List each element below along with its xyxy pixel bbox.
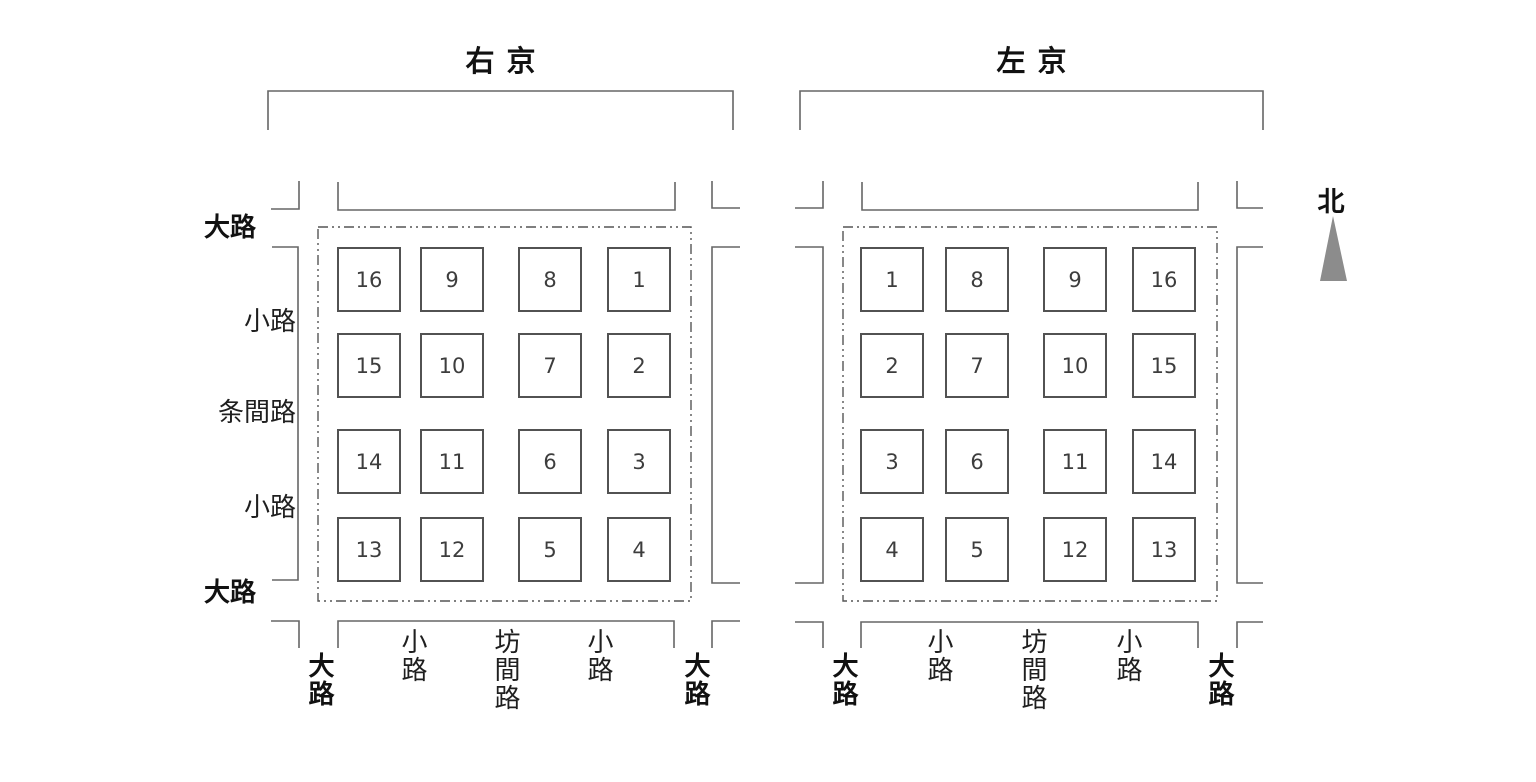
road-label-oji-south: 大路 <box>156 578 256 608</box>
block-cell: 16 <box>337 247 401 312</box>
block-cell: 4 <box>860 517 924 582</box>
road-label-jokanji: 条間路 <box>166 398 296 428</box>
road-label-koji-ukyo-1: 小路 <box>398 628 426 684</box>
block-cell: 10 <box>420 333 484 398</box>
road-label-oji-east-sakyo: 大路 <box>1205 652 1233 708</box>
road-label-oji-west-sakyo: 大路 <box>829 652 857 708</box>
road-label-koji-sakyo-2: 小路 <box>1113 628 1141 684</box>
block-cell: 15 <box>1132 333 1196 398</box>
block-cell: 1 <box>607 247 671 312</box>
ukyo-north-block-edge <box>338 182 675 210</box>
road-label-koji-sakyo-1: 小路 <box>924 628 952 684</box>
block-cell: 7 <box>518 333 582 398</box>
block-cell: 3 <box>860 429 924 494</box>
block-cell: 14 <box>1132 429 1196 494</box>
block-cell: 5 <box>945 517 1009 582</box>
sakyo-north-block-edge <box>862 182 1198 210</box>
block-cell: 8 <box>518 247 582 312</box>
sakyo-title: 左京 <box>800 44 1263 78</box>
sakyo-east-block-edge <box>1237 247 1263 583</box>
block-cell: 9 <box>1043 247 1107 312</box>
road-label-bokanji-sakyo: 坊間路 <box>1018 628 1046 712</box>
sakyo-sw-corner <box>795 622 823 648</box>
block-cell: 11 <box>1043 429 1107 494</box>
block-cell: 2 <box>860 333 924 398</box>
ukyo-se-corner <box>712 621 740 648</box>
sakyo-se-corner <box>1237 622 1263 648</box>
road-label-koji-ukyo-2: 小路 <box>584 628 612 684</box>
ukyo-nw-corner <box>271 181 299 209</box>
block-cell: 12 <box>420 517 484 582</box>
block-cell: 6 <box>945 429 1009 494</box>
block-cell: 9 <box>420 247 484 312</box>
road-label-oji-east-ukyo: 大路 <box>681 652 709 708</box>
block-cell: 3 <box>607 429 671 494</box>
block-cell: 5 <box>518 517 582 582</box>
sakyo-west-block-edge <box>795 247 823 583</box>
block-cell: 15 <box>337 333 401 398</box>
north-arrow-icon <box>1320 216 1347 281</box>
ukyo-title: 右京 <box>268 44 733 78</box>
sakyo-nw-corner <box>795 181 823 208</box>
ukyo-east-block-edge <box>712 247 740 583</box>
block-cell: 6 <box>518 429 582 494</box>
block-cell: 2 <box>607 333 671 398</box>
sakyo-ne-corner <box>1237 181 1263 208</box>
block-cell: 4 <box>607 517 671 582</box>
road-label-koji-2: 小路 <box>196 493 296 523</box>
sakyo-title-bracket <box>800 91 1263 130</box>
ukyo-ne-corner <box>712 181 740 208</box>
block-cell: 1 <box>860 247 924 312</box>
block-cell: 8 <box>945 247 1009 312</box>
block-cell: 13 <box>1132 517 1196 582</box>
road-label-koji-1: 小路 <box>196 307 296 337</box>
road-label-oji-west-ukyo: 大路 <box>305 652 333 708</box>
road-diagram-lines <box>0 0 1536 782</box>
block-cell: 12 <box>1043 517 1107 582</box>
ukyo-title-bracket <box>268 91 733 130</box>
ukyo-sw-corner <box>271 621 299 648</box>
ward-layout-diagram: 右京 左京 北 大路 小路 条間路 小路 大路 大路 小路 坊間路 小路 大路 … <box>0 0 1536 782</box>
road-label-oji-north: 大路 <box>156 213 256 243</box>
block-cell: 11 <box>420 429 484 494</box>
road-label-bokanji-ukyo: 坊間路 <box>491 628 519 712</box>
block-cell: 7 <box>945 333 1009 398</box>
block-cell: 14 <box>337 429 401 494</box>
north-label: 北 <box>1303 180 1359 219</box>
block-cell: 13 <box>337 517 401 582</box>
block-cell: 16 <box>1132 247 1196 312</box>
block-cell: 10 <box>1043 333 1107 398</box>
